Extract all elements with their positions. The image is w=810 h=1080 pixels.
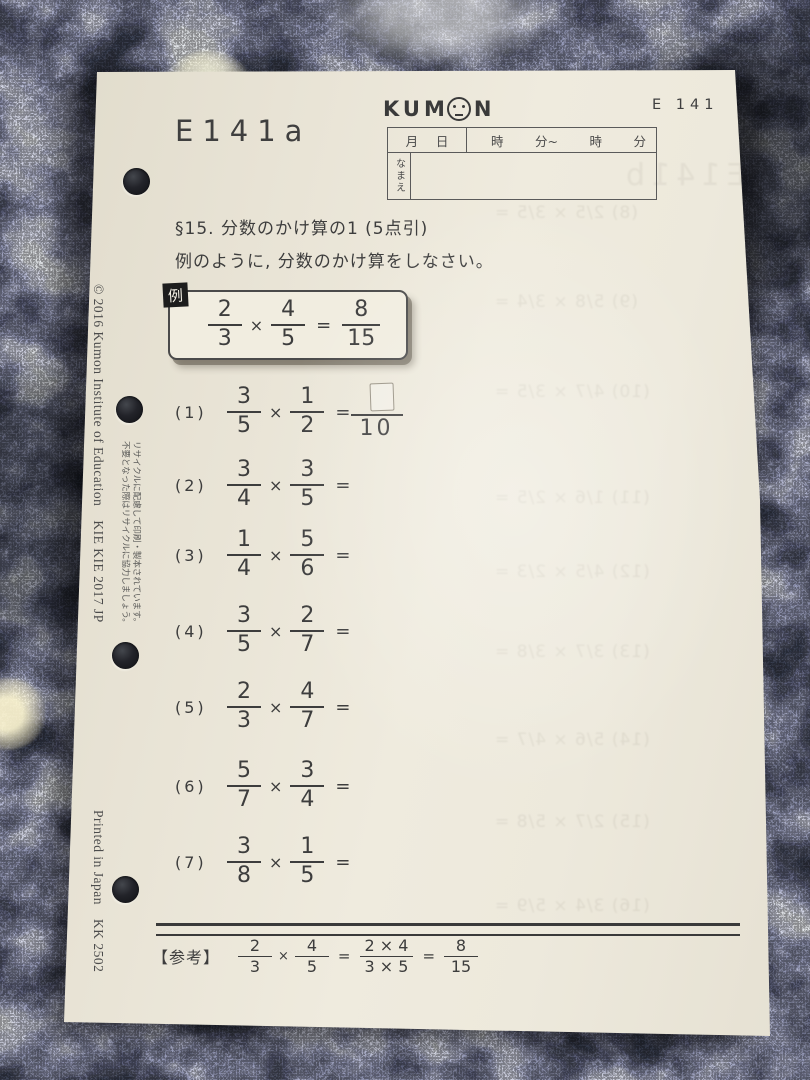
problem-label: (7)	[175, 853, 227, 872]
answer-box	[369, 382, 394, 411]
multiply-sign: ×	[269, 777, 282, 796]
problem-row: (3) 14 × 56 =	[175, 524, 351, 586]
denominator: 5	[271, 324, 305, 352]
fraction: 38	[227, 835, 261, 888]
problem-row: (4) 35 × 27 =	[175, 600, 351, 662]
reference-label: 【参考】	[152, 944, 220, 968]
fraction: 57	[227, 759, 261, 812]
name-row: なまえ	[388, 153, 656, 199]
denominator: 7	[290, 630, 324, 658]
denominator: 4	[227, 554, 261, 582]
denominator: 8	[227, 861, 261, 889]
numerator: 1	[232, 528, 256, 554]
showthrough-row: (12) 4/5 × 2/3 =	[494, 562, 650, 582]
fraction: 12	[290, 385, 324, 438]
fraction: 56	[290, 528, 324, 581]
example-label: 例	[162, 282, 188, 307]
name-field-area	[411, 153, 656, 199]
minute-label: 分	[633, 131, 646, 150]
numerator: 1	[295, 835, 319, 861]
numerator: 3	[295, 458, 319, 484]
showthrough-row: (13) 3/7 × 3/8 =	[494, 642, 650, 662]
problem-label: (5)	[175, 698, 227, 717]
kumon-logo-text-right: N	[474, 97, 496, 121]
numerator: 4	[276, 298, 300, 324]
equals-sign: =	[316, 315, 331, 336]
numerator: 3	[232, 835, 256, 861]
kumon-logo: KUM N	[383, 97, 495, 121]
expanded-fraction: 2 × 43 × 5	[360, 937, 414, 976]
problem-label: (6)	[175, 777, 227, 796]
problem-row: (7) 38 × 15 =	[175, 831, 351, 893]
numerator: 8	[349, 298, 373, 324]
reference-row: 【参考】 23 × 45 = 2 × 43 × 5 = 815	[152, 937, 478, 976]
example-box: 例 2 3 × 4 5 = 8 15	[168, 290, 408, 360]
equals-sign: =	[335, 475, 350, 496]
problem-row: (2) 34 × 35 =	[175, 454, 351, 516]
section-heading: §15. 分数のかけ算の1 (5点引)	[175, 214, 428, 239]
fraction: 45	[295, 937, 329, 976]
numerator: 3	[232, 604, 256, 630]
recycle-note-vertical-text: リサイクルに配慮して印刷・製本されています。 不要となった際はリサイクルに協力し…	[120, 441, 142, 627]
minute-from-label: 分~	[535, 131, 558, 150]
fraction: 23	[227, 680, 261, 733]
fraction: 35	[227, 385, 261, 438]
numerator: 4	[302, 937, 322, 956]
denominator: 5	[290, 484, 324, 512]
fraction: 8 15	[342, 298, 380, 351]
denominator: 3	[208, 324, 242, 352]
instruction-text: 例のように, 分数のかけ算をしなさい。	[175, 247, 494, 272]
numerator: 2 × 4	[360, 937, 414, 956]
denominator: 4	[227, 484, 261, 512]
numerator: 2	[245, 937, 265, 956]
fraction: 4 5	[271, 298, 305, 351]
showthrough-row: (8) 2/5 × 3/5 =	[494, 203, 638, 223]
fraction: 14	[227, 528, 261, 581]
equals-sign: =	[338, 947, 351, 965]
multiply-sign: ×	[269, 698, 282, 717]
multiply-sign: ×	[269, 476, 282, 495]
numerator: 4	[295, 680, 319, 706]
time-cell: 時 分~ 時 分	[467, 131, 656, 150]
punch-hole	[112, 876, 139, 903]
denominator: 15	[444, 956, 478, 976]
equals-sign: =	[335, 402, 350, 423]
denominator: 5	[290, 861, 324, 889]
punch-hole	[123, 168, 150, 195]
fraction: 47	[290, 680, 324, 733]
problem-label: (3)	[175, 546, 227, 565]
numerator: 3	[232, 385, 256, 411]
divider-double-line	[156, 923, 740, 936]
equals-sign: =	[335, 776, 350, 797]
answer-fraction: 10	[351, 383, 403, 442]
denominator: 6	[290, 554, 324, 582]
denominator: 10	[351, 414, 403, 442]
equals-sign: =	[335, 545, 350, 566]
problem-label: (2)	[175, 476, 227, 495]
showthrough-row: (15) 2/7 × 5/8 =	[494, 812, 650, 832]
worksheet-title: E141a	[175, 114, 311, 148]
punch-hole	[116, 396, 143, 423]
fraction: 34	[227, 458, 261, 511]
problem-row: (1) 35 × 12 = 10	[175, 381, 403, 443]
denominator: 5	[227, 630, 261, 658]
numerator: 1	[295, 385, 319, 411]
recycle-note-line: リサイクルに配慮して印刷・製本されています。	[131, 441, 142, 627]
page-code: E 141	[652, 97, 718, 113]
punch-hole	[112, 642, 139, 669]
recycle-note-line: 不要となった際はリサイクルに協力しましょう。	[120, 441, 131, 627]
denominator: 3 × 5	[360, 956, 414, 976]
fraction: 34	[290, 759, 324, 812]
fraction: 35	[290, 458, 324, 511]
multiply-sign: ×	[269, 622, 282, 641]
photo-scene: E141b (8) 2/5 × 3/5 = (9) 5/8 × 3/4 = (1…	[0, 0, 810, 1080]
numerator: 2	[232, 680, 256, 706]
denominator: 4	[290, 785, 324, 813]
fraction: 23	[238, 937, 272, 976]
multiply-sign: ×	[250, 316, 263, 335]
fraction: 15	[290, 835, 324, 888]
multiply-sign: ×	[278, 949, 289, 964]
fraction: 27	[290, 604, 324, 657]
name-label: なまえ	[388, 153, 411, 199]
problem-row: (6) 57 × 34 =	[175, 755, 351, 817]
problem-label: (1)	[175, 403, 227, 422]
problem-row: (5) 23 × 47 =	[175, 676, 351, 738]
header-table: 月 日 時 分~ 時 分 なまえ	[387, 127, 657, 200]
numerator: 5	[232, 759, 256, 785]
hour-label: 時	[589, 131, 602, 150]
equals-sign: =	[335, 621, 350, 642]
denominator: 7	[290, 706, 324, 734]
denominator: 7	[227, 785, 261, 813]
copyright-vertical-text: © 2016 Kumon Institute of Education KIE …	[90, 284, 110, 623]
fraction: 35	[227, 604, 261, 657]
showthrough-row: (9) 5/8 × 3/4 =	[494, 292, 638, 312]
numerator: 8	[451, 937, 471, 956]
equals-sign: =	[335, 697, 350, 718]
numerator: 5	[295, 528, 319, 554]
numerator: 3	[232, 458, 256, 484]
showthrough-row: (10) 4/7 × 3/5 =	[494, 382, 650, 402]
result-fraction: 815	[444, 937, 478, 976]
numerator: 2	[213, 298, 237, 324]
showthrough-row: (14) 5/6 × 4/7 =	[494, 730, 650, 750]
showthrough-row: (16) 3/4 × 5/9 =	[494, 896, 650, 916]
paper-sheet: E141b (8) 2/5 × 3/5 = (9) 5/8 × 3/4 = (1…	[64, 70, 776, 1040]
multiply-sign: ×	[269, 546, 282, 565]
equals-sign: =	[422, 947, 435, 965]
denominator: 3	[238, 956, 272, 976]
kumon-face-icon	[447, 97, 471, 121]
numerator: 3	[295, 759, 319, 785]
multiply-sign: ×	[269, 403, 282, 422]
date-cell: 月 日	[388, 128, 467, 152]
denominator: 3	[227, 706, 261, 734]
day-label: 日	[436, 131, 449, 150]
denominator: 2	[290, 411, 324, 439]
denominator: 5	[227, 411, 261, 439]
equals-sign: =	[335, 852, 350, 873]
printed-in-japan-text: Printed in Japan KK 2502	[90, 810, 110, 972]
month-label: 月	[406, 131, 419, 150]
denominator: 15	[342, 324, 380, 352]
multiply-sign: ×	[269, 853, 282, 872]
date-time-row: 月 日 時 分~ 時 分	[388, 128, 656, 153]
kumon-logo-text-left: KUM	[383, 97, 449, 121]
fraction: 2 3	[208, 298, 242, 351]
hour-label: 時	[491, 131, 504, 150]
showthrough-row: (11) 1/6 × 2/5 =	[494, 488, 650, 508]
denominator: 5	[295, 956, 329, 976]
numerator: 2	[295, 604, 319, 630]
problem-label: (4)	[175, 622, 227, 641]
